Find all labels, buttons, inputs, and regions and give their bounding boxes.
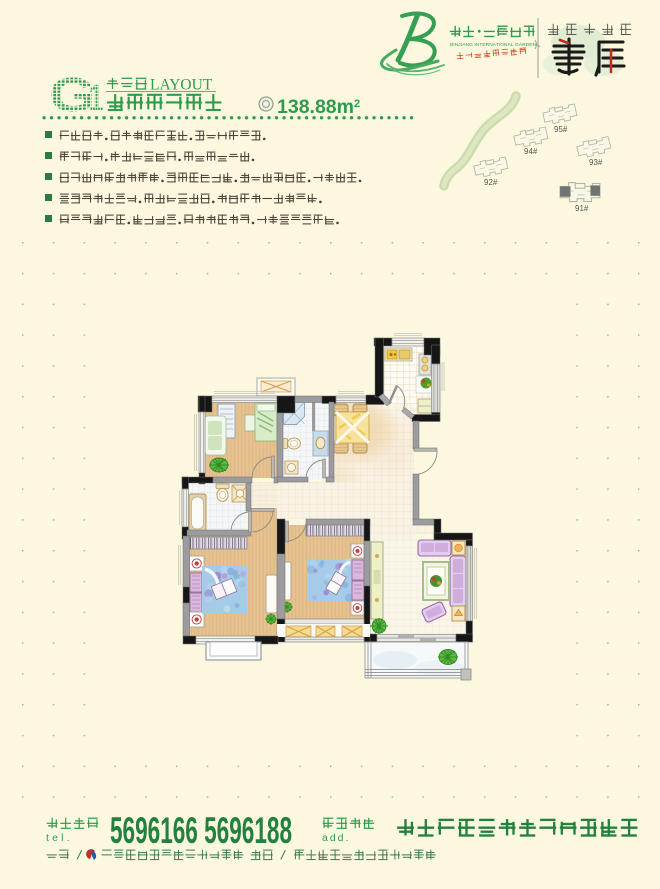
svg-text:1: 1 [88, 78, 104, 120]
svg-text:BINJIANG INTERNATIONAL GARDEN: BINJIANG INTERNATIONAL GARDEN [450, 42, 536, 48]
svg-text:LAYOUT: LAYOUT [150, 77, 213, 94]
svg-text:93#: 93# [589, 158, 603, 167]
svg-text:94#: 94# [524, 147, 538, 156]
svg-text:91#: 91# [575, 204, 589, 213]
svg-text:add.: add. [322, 832, 350, 844]
svg-text:5696166 5696188: 5696166 5696188 [110, 810, 292, 851]
svg-text:138.88m2: 138.88m2 [277, 96, 360, 118]
svg-text:tel.: tel. [46, 832, 73, 844]
svg-text:92#: 92# [484, 178, 498, 187]
svg-text:95#: 95# [554, 125, 568, 134]
